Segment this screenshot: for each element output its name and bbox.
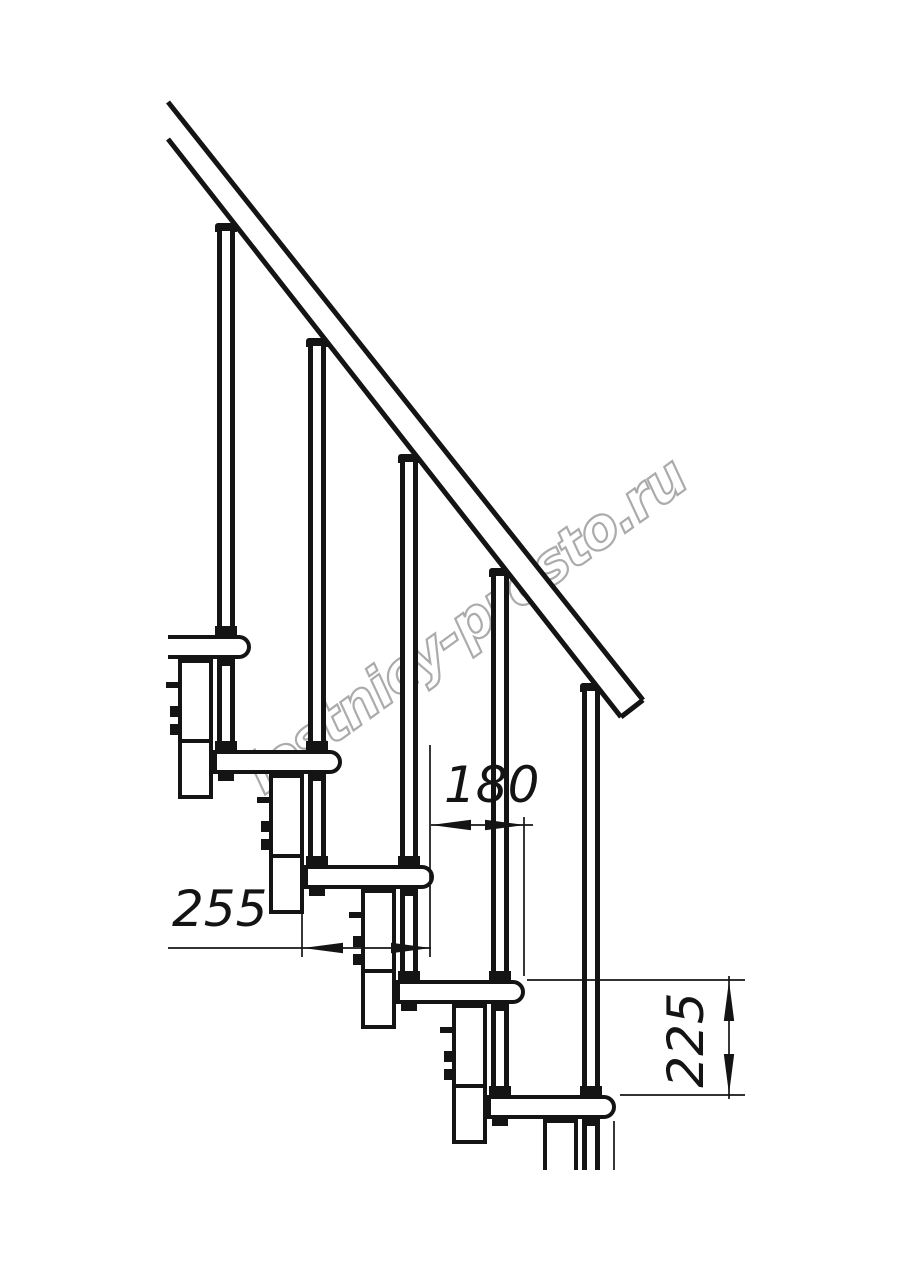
dimension-labels-layer: 255 180 225 <box>0 0 914 1280</box>
staircase-drawing-canvas: lestnicy-prosto.ru 255 180 225 <box>0 0 914 1280</box>
dimension-label-255: 255 <box>172 884 267 934</box>
dimension-label-180: 180 <box>444 760 539 810</box>
dimension-label-225: 225 <box>661 978 711 1102</box>
